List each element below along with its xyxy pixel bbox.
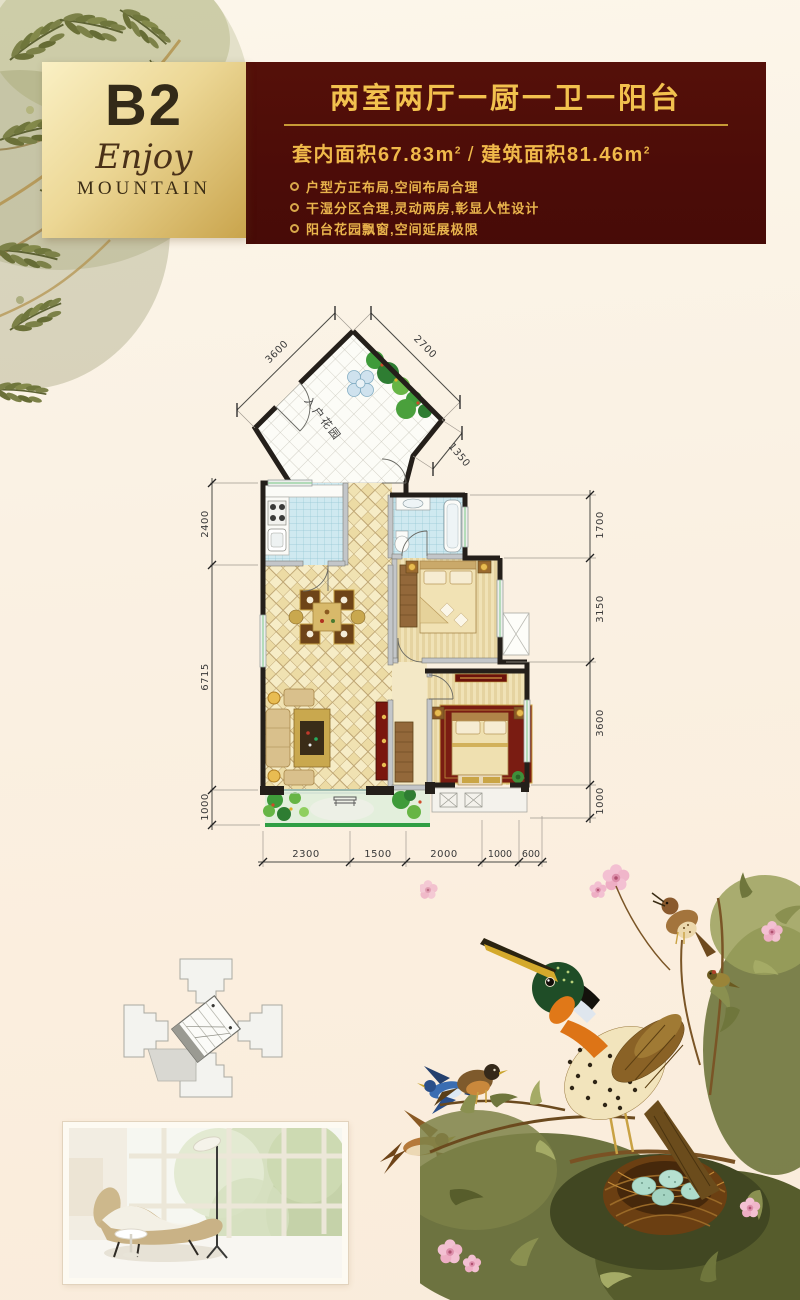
bullet-dot-icon bbox=[290, 203, 299, 212]
bullet-dot-icon bbox=[290, 224, 299, 233]
area-unit: m bbox=[436, 144, 455, 166]
dim-label: 1000 bbox=[595, 787, 606, 814]
dim-label: 1500 bbox=[364, 849, 391, 860]
area-unit-sup-2: 2 bbox=[644, 145, 651, 156]
dim-label: 1700 bbox=[595, 511, 606, 538]
dim-label: 6715 bbox=[200, 663, 211, 690]
badge-script-word: Enjoy bbox=[42, 138, 246, 176]
area-right-value: 81.46 bbox=[567, 144, 625, 166]
selling-points: 户型方正布局,空间布局合理 干湿分区合理,灵动两房,彰显人性设计 阳台花园飘窗,… bbox=[246, 177, 766, 240]
entry-hall-floor bbox=[345, 483, 392, 565]
dim-label: 600 bbox=[522, 849, 540, 860]
floor-plan: 入户花园 bbox=[170, 285, 670, 925]
area-divider: / bbox=[468, 144, 475, 166]
corridor-wardrobe bbox=[395, 722, 413, 782]
bullet-item: 户型方正布局,空间布局合理 bbox=[290, 177, 766, 198]
bird-illustration bbox=[420, 860, 800, 1300]
area-line: 套内面积67.83m2/建筑面积81.46m2 bbox=[246, 138, 766, 167]
interior-photo-scene bbox=[69, 1128, 342, 1278]
area-unit-sup: 2 bbox=[455, 145, 462, 156]
dim-label: 2400 bbox=[200, 510, 211, 537]
dim-label: 1000 bbox=[200, 793, 211, 820]
banner-underline bbox=[284, 124, 728, 126]
area-right-label: 建筑面积 bbox=[481, 144, 567, 166]
area-left-label: 套内面积 bbox=[292, 144, 378, 166]
singing-bird bbox=[652, 893, 716, 957]
bay-window bbox=[432, 788, 527, 812]
dim-label: 1000 bbox=[488, 849, 512, 860]
dim-label: 2000 bbox=[430, 849, 457, 860]
dim-label: 2300 bbox=[292, 849, 319, 860]
dim-label: 1350 bbox=[446, 441, 472, 469]
dim-label: 3150 bbox=[595, 595, 606, 622]
brochure-page: B2 Enjoy MOUNTAIN 两室两厅一厨一卫一阳台 套内面积67.83m… bbox=[0, 0, 800, 1300]
bullet-item: 阳台花园飘窗,空间延展极限 bbox=[290, 219, 766, 240]
badge-caps-word: MOUNTAIN bbox=[42, 178, 246, 200]
headline-banner: 两室两厅一厨一卫一阳台 套内面积67.83m2/建筑面积81.46m2 户型方正… bbox=[246, 62, 766, 244]
unit-code: B2 bbox=[42, 76, 246, 136]
area-unit-2: m bbox=[625, 144, 644, 166]
dim-label: 3600 bbox=[595, 709, 606, 736]
key-plan bbox=[118, 953, 288, 1103]
bullet-item: 干湿分区合理,灵动两房,彰显人性设计 bbox=[290, 198, 766, 219]
bullet-dot-icon bbox=[290, 182, 299, 191]
unit-badge: B2 Enjoy MOUNTAIN bbox=[42, 62, 246, 238]
banner-title: 两室两厅一厨一卫一阳台 bbox=[246, 75, 766, 117]
area-left-value: 67.83 bbox=[378, 144, 436, 166]
dim-label: 3600 bbox=[264, 339, 291, 366]
ac-platform bbox=[503, 613, 529, 655]
interior-photo bbox=[63, 1122, 348, 1284]
